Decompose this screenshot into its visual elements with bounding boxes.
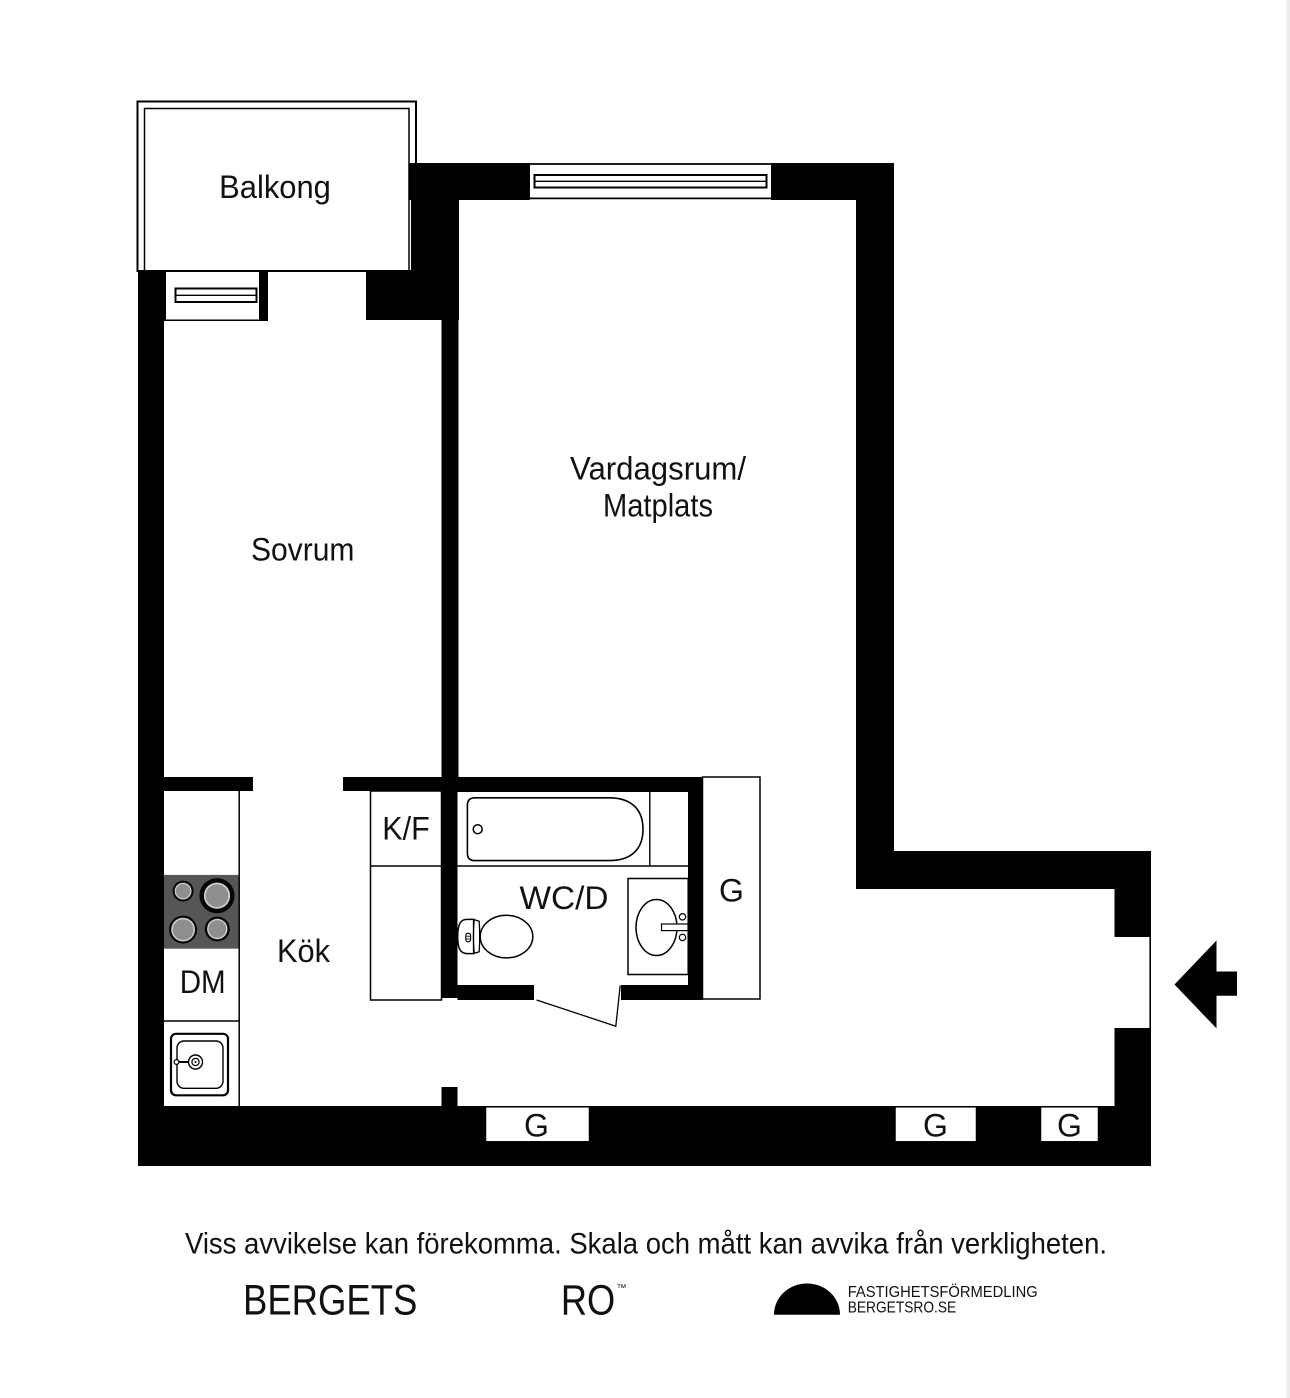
svg-text:DM: DM [180,964,226,1000]
svg-text:Kök: Kök [277,933,331,969]
svg-text:Vardagsrum/: Vardagsrum/ [570,451,746,487]
svg-text:K/F: K/F [382,811,430,847]
svg-text:WC/D: WC/D [520,880,609,916]
svg-text:G: G [923,1107,948,1143]
svg-text:G: G [1057,1107,1082,1143]
svg-text:Viss avvikelse kan förekomma.: Viss avvikelse kan förekomma. Skala och … [185,1228,1107,1261]
svg-text:™: ™ [617,1283,627,1294]
svg-text:G: G [524,1107,549,1143]
svg-text:RO: RO [561,1278,615,1325]
svg-text:BERGETS: BERGETS [243,1278,417,1325]
svg-text:BERGETSRO.SE: BERGETSRO.SE [848,1299,957,1316]
svg-text:FASTIGHETSFÖRMEDLING: FASTIGHETSFÖRMEDLING [848,1283,1038,1301]
svg-text:Balkong: Balkong [219,169,331,205]
svg-text:Matplats: Matplats [603,487,713,523]
svg-text:Sovrum: Sovrum [251,531,355,567]
svg-text:G: G [719,873,744,909]
